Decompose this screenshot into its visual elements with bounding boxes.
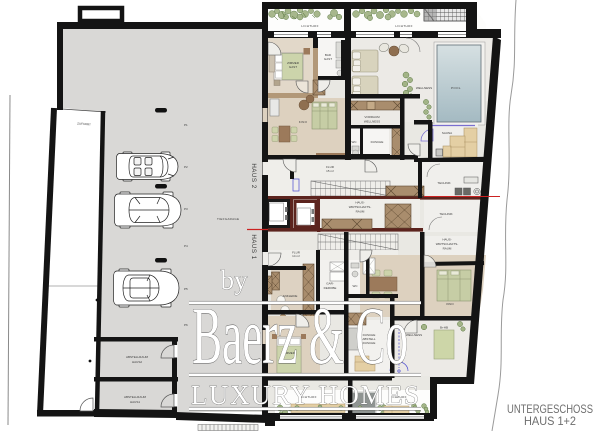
- svg-text:P5: P5: [184, 287, 188, 291]
- svg-text:WIRTSCHAFTS-: WIRTSCHAFTS-: [349, 205, 372, 209]
- svg-text:RAUM: RAUM: [356, 209, 365, 213]
- svg-text:HAUS2: HAUS2: [132, 360, 142, 364]
- svg-text:WC: WC: [352, 140, 358, 144]
- svg-text:HAUS-: HAUS-: [355, 201, 364, 205]
- svg-text:15 m²: 15 m²: [326, 169, 334, 173]
- svg-text:WELLNESS: WELLNESS: [416, 86, 432, 90]
- svg-text:P4: P4: [184, 244, 188, 248]
- svg-text:HAUS 1: HAUS 1: [250, 234, 257, 259]
- svg-text:WC: WC: [353, 284, 359, 288]
- svg-text:TECHNIK: TECHNIK: [439, 212, 452, 216]
- svg-text:KINO: KINO: [299, 120, 308, 124]
- svg-text:GAST: GAST: [289, 65, 297, 69]
- svg-text:P1: P1: [184, 123, 188, 127]
- svg-text:ABSTELLRAUM: ABSTELLRAUM: [124, 395, 147, 399]
- svg-text:DUSCHE: DUSCHE: [371, 140, 384, 144]
- svg-text:WELLNESS: WELLNESS: [406, 333, 422, 337]
- svg-text:SAUNA: SAUNA: [442, 131, 452, 135]
- svg-text:HAUS1: HAUS1: [130, 400, 140, 404]
- svg-text:KINO: KINO: [446, 302, 454, 306]
- svg-text:14 m²: 14 m²: [292, 254, 300, 258]
- svg-text:HAUS 2: HAUS 2: [250, 163, 257, 188]
- svg-text:LICHTHOF: LICHTHOF: [395, 24, 412, 28]
- svg-text:RAUM: RAUM: [443, 247, 452, 251]
- svg-text:GAR-: GAR-: [326, 282, 334, 286]
- svg-text:TECHNIK: TECHNIK: [437, 181, 450, 185]
- svg-text:P2: P2: [184, 165, 188, 169]
- svg-text:P3: P3: [184, 207, 188, 211]
- svg-text:P6: P6: [184, 323, 188, 327]
- svg-text:HAUS 1+2: HAUS 1+2: [524, 414, 576, 428]
- svg-text:GAST: GAST: [324, 57, 332, 61]
- svg-text:ABSTELLRAUM: ABSTELLRAUM: [126, 355, 149, 359]
- svg-text:B+HB: B+HB: [440, 326, 448, 330]
- svg-text:LICHTHOF: LICHTHOF: [301, 24, 318, 28]
- svg-text:POOL: POOL: [451, 86, 461, 90]
- svg-text:TIEFGARAGE: TIEFGARAGE: [217, 217, 239, 221]
- svg-text:WELLNESS: WELLNESS: [364, 120, 380, 124]
- svg-text:WIRTSCHAFTS-: WIRTSCHAFTS-: [436, 242, 459, 246]
- svg-text:Baerz & Co: Baerz & Co: [192, 290, 408, 381]
- svg-text:VORRAUM: VORRAUM: [364, 115, 380, 119]
- svg-text:HAUS-: HAUS-: [442, 238, 451, 242]
